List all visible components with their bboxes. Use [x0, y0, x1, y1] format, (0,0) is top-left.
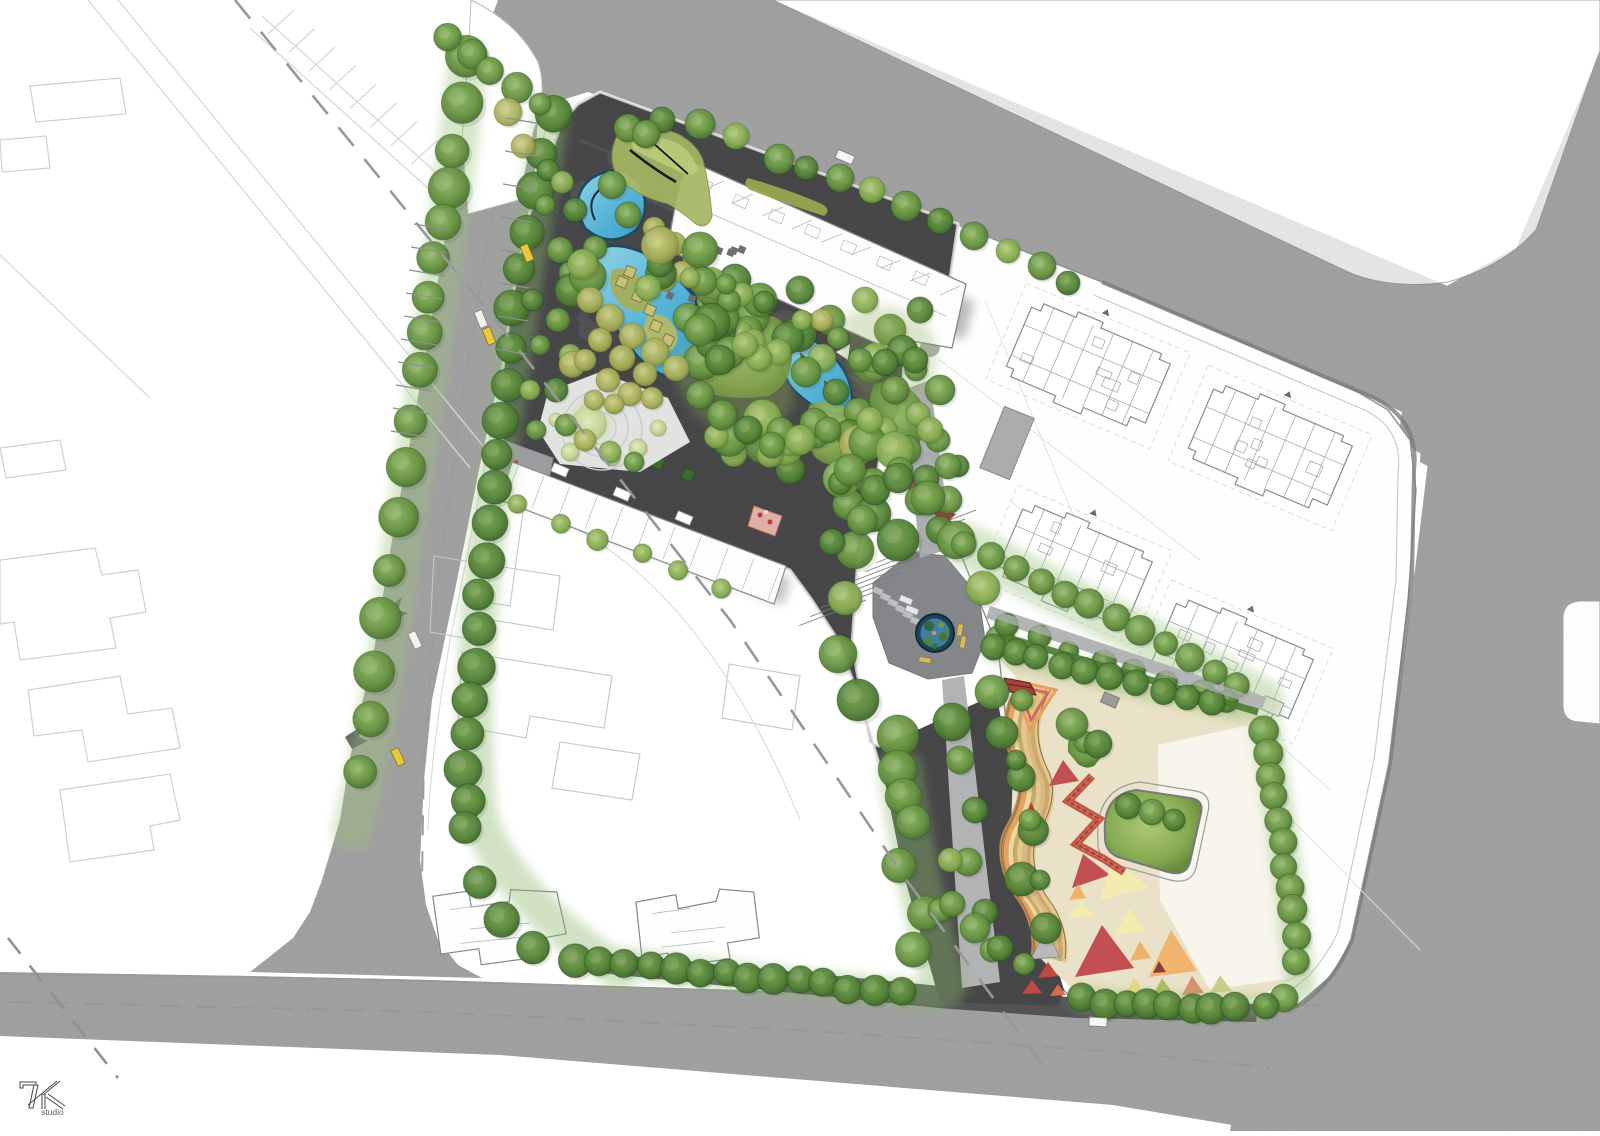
svg-text:studio: studio: [41, 1107, 64, 1117]
